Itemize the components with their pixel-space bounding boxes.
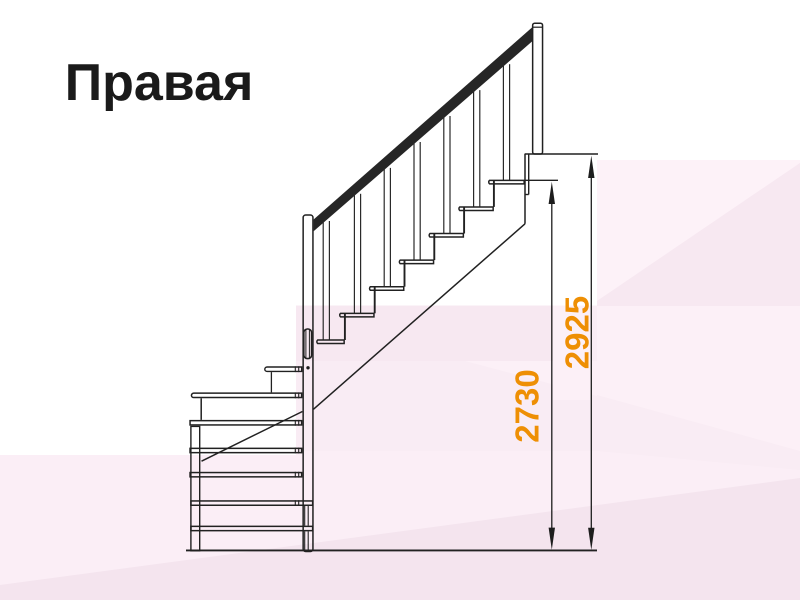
svg-text:Правая: Правая <box>65 54 254 112</box>
svg-text:2730: 2730 <box>509 369 546 442</box>
svg-text:2925: 2925 <box>559 296 596 369</box>
